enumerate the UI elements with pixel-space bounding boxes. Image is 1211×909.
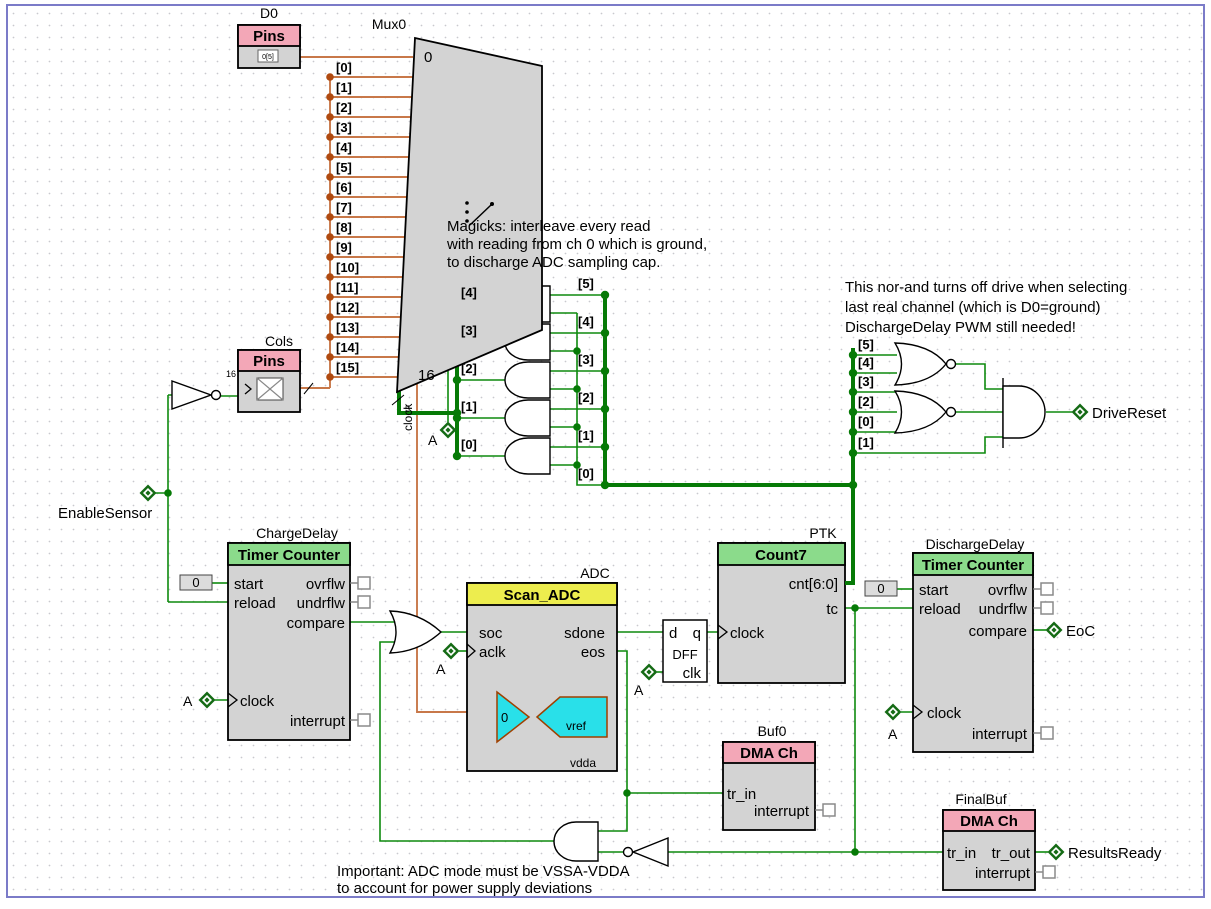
pin-soc: soc xyxy=(479,625,503,642)
junction xyxy=(326,73,334,81)
ovrflw-terminal[interactable] xyxy=(1041,583,1053,595)
finalbuf-type: DMA Ch xyxy=(960,813,1018,830)
chargedelay-body[interactable] xyxy=(228,543,350,740)
count7-name: PTK xyxy=(809,525,837,541)
buf0-type: DMA Ch xyxy=(740,745,798,762)
pin-start: start xyxy=(234,576,264,593)
and-gate-interleave-2[interactable] xyxy=(505,362,550,398)
clock-a-label: A xyxy=(428,432,438,448)
junction xyxy=(326,213,334,221)
pin-clock: clock xyxy=(240,693,275,710)
schematic-canvas[interactable]: Mux0 0 16 5 clock [0][1] [2][3] [4][5] [… xyxy=(0,0,1211,909)
d0-name: D0 xyxy=(260,5,278,21)
svg-text:[0]: [0] xyxy=(858,414,874,429)
mux-body[interactable] xyxy=(397,38,542,392)
pin-undrflw: undrflw xyxy=(979,601,1028,618)
dischargedelay-type: Timer Counter xyxy=(922,557,1024,574)
pin-clock: clock xyxy=(730,625,765,642)
cols-width-left: 16 xyxy=(226,369,236,379)
note-magicks[interactable]: to discharge ADC sampling cap. xyxy=(447,254,660,271)
svg-text:[9]: [9] xyxy=(336,240,352,255)
inverter-enable-bubble xyxy=(212,391,221,400)
interrupt-terminal[interactable] xyxy=(1043,866,1055,878)
buf0-name: Buf0 xyxy=(758,723,787,739)
pin-reload: reload xyxy=(234,595,276,612)
junction xyxy=(326,113,334,121)
count7-type: Count7 xyxy=(755,547,807,564)
pin-reload: reload xyxy=(919,601,961,618)
and-gate-interleave-0[interactable] xyxy=(505,438,550,474)
pin-start: start xyxy=(919,582,949,599)
enablesensor-label: EnableSensor xyxy=(58,505,152,522)
resultsready-label: ResultsReady xyxy=(1068,845,1162,862)
finalbuf-name: FinalBuf xyxy=(955,791,1006,807)
svg-text:[11]: [11] xyxy=(336,280,358,295)
interrupt-terminal[interactable] xyxy=(358,714,370,726)
drivereset-label: DriveReset xyxy=(1092,405,1167,422)
mux-clock-label: clock xyxy=(401,403,415,431)
dff-name: DFF xyxy=(672,647,697,662)
pin-q: q xyxy=(693,625,701,642)
undrflw-terminal[interactable] xyxy=(358,596,370,608)
svg-text:[15]: [15] xyxy=(336,360,359,375)
adc-name: ADC xyxy=(580,565,610,581)
clock-a-label: A xyxy=(888,726,898,742)
dischargedelay-name: DischargeDelay xyxy=(926,536,1025,552)
clock-a-label: A xyxy=(634,682,644,698)
component-dff[interactable]: d q DFF clk xyxy=(663,620,707,682)
ovrflw-terminal[interactable] xyxy=(358,577,370,589)
mux-in16-label: 16 xyxy=(418,367,435,384)
svg-text:[2]: [2] xyxy=(336,100,352,115)
note-norand[interactable]: DischargeDelay PWM still needed! xyxy=(845,319,1076,336)
component-adc[interactable]: ADC Scan_ADC soc aclk sdone eos 0 vref v… xyxy=(467,565,617,771)
and-gate-interleave-1[interactable] xyxy=(505,400,550,436)
junction xyxy=(326,133,334,141)
svg-text:[4]: [4] xyxy=(336,140,352,155)
junction xyxy=(326,373,334,381)
svg-text:[4]: [4] xyxy=(578,314,594,329)
pin-tr-out: tr_out xyxy=(992,845,1031,862)
pin-compare: compare xyxy=(287,615,345,632)
pin-interrupt: interrupt xyxy=(972,726,1028,743)
adc-zero-label: 0 xyxy=(501,710,508,725)
svg-text:[2]: [2] xyxy=(461,361,477,376)
svg-text:[5]: [5] xyxy=(578,276,594,291)
pin-interrupt: interrupt xyxy=(290,713,346,730)
d0-pin-glyph-label: 0[5] xyxy=(262,54,274,61)
vref-label: vref xyxy=(566,719,587,733)
note-important[interactable]: to account for power supply deviations xyxy=(337,880,592,897)
note-magicks[interactable]: with reading from ch 0 which is ground, xyxy=(446,236,707,253)
junction xyxy=(326,93,334,101)
pin-compare: compare xyxy=(969,623,1027,640)
vdda-label: vdda xyxy=(570,756,596,770)
nor-lower-bubble xyxy=(947,408,956,417)
svg-text:[10]: [10] xyxy=(336,260,359,275)
const-zero-label: 0 xyxy=(877,581,884,596)
junction xyxy=(326,253,334,261)
svg-text:[8]: [8] xyxy=(336,220,352,235)
svg-text:[12]: [12] xyxy=(336,300,359,315)
svg-text:[1]: [1] xyxy=(578,428,594,443)
svg-text:[1]: [1] xyxy=(336,80,352,95)
svg-text:[6]: [6] xyxy=(336,180,352,195)
junction xyxy=(326,353,334,361)
mux-in0-label: 0 xyxy=(424,49,432,66)
pin-clock: clock xyxy=(927,705,962,722)
svg-text:[0]: [0] xyxy=(336,60,352,75)
note-norand[interactable]: This nor-and turns off drive when select… xyxy=(845,279,1127,296)
pin-cnt: cnt[6:0] xyxy=(789,576,838,593)
svg-text:[4]: [4] xyxy=(461,285,477,300)
adc-type: Scan_ADC xyxy=(504,587,581,604)
pin-sdone: sdone xyxy=(564,625,605,642)
cols-name: Cols xyxy=(265,333,293,349)
pin-aclk: aclk xyxy=(479,644,506,661)
junction xyxy=(326,313,334,321)
svg-text:[13]: [13] xyxy=(336,320,359,335)
chargedelay-name: ChargeDelay xyxy=(256,525,338,541)
junction xyxy=(326,233,334,241)
eoc-label: EoC xyxy=(1066,623,1095,640)
pin-interrupt: interrupt xyxy=(975,865,1031,882)
svg-text:[14]: [14] xyxy=(336,340,359,355)
pin-eos: eos xyxy=(581,644,605,661)
inverter-bottom-bubble xyxy=(624,848,633,857)
chargedelay-type: Timer Counter xyxy=(238,547,340,564)
svg-text:[1]: [1] xyxy=(858,435,874,450)
svg-text:[3]: [3] xyxy=(578,352,594,367)
d0-type: Pins xyxy=(253,28,285,45)
svg-text:[2]: [2] xyxy=(858,394,874,409)
svg-text:[1]: [1] xyxy=(461,399,477,414)
mux-name: Mux0 xyxy=(372,16,406,32)
interrupt-terminal[interactable] xyxy=(1041,727,1053,739)
junction xyxy=(326,153,334,161)
clock-a-label: A xyxy=(436,661,446,677)
const-zero-label: 0 xyxy=(192,575,199,590)
pin-d: d xyxy=(669,625,677,642)
interrupt-terminal[interactable] xyxy=(823,804,835,816)
pin-tr-in: tr_in xyxy=(947,845,976,862)
clock-a-label: A xyxy=(183,693,193,709)
svg-text:[5]: [5] xyxy=(336,160,352,175)
pin-tc: tc xyxy=(826,601,838,618)
pin-interrupt: interrupt xyxy=(754,803,810,820)
pin-undrflw: undrflw xyxy=(297,595,346,612)
svg-text:[4]: [4] xyxy=(858,355,874,370)
cols-type: Pins xyxy=(253,353,285,370)
junction xyxy=(326,333,334,341)
svg-text:[0]: [0] xyxy=(578,466,594,481)
junction xyxy=(326,273,334,281)
svg-text:[0]: [0] xyxy=(461,437,477,452)
and-gate-bottom[interactable] xyxy=(554,822,598,861)
adc-body[interactable] xyxy=(467,583,617,771)
undrflw-terminal[interactable] xyxy=(1041,602,1053,614)
pin-ovrflw: ovrflw xyxy=(306,576,345,593)
svg-text:[3]: [3] xyxy=(858,374,874,389)
svg-text:[3]: [3] xyxy=(461,323,477,338)
junction xyxy=(326,193,334,201)
note-magicks[interactable]: Magicks: interleave every read xyxy=(447,218,650,235)
pin-ovrflw: ovrflw xyxy=(988,582,1027,599)
svg-text:[2]: [2] xyxy=(578,390,594,405)
pin-clk: clk xyxy=(683,665,702,682)
pin-tr-in: tr_in xyxy=(727,786,756,803)
svg-text:[7]: [7] xyxy=(336,200,352,215)
svg-text:[3]: [3] xyxy=(336,120,352,135)
junction xyxy=(326,293,334,301)
nor-upper-bubble xyxy=(947,360,956,369)
junction xyxy=(326,173,334,181)
svg-text:[5]: [5] xyxy=(858,337,874,352)
note-important[interactable]: Important: ADC mode must be VSSA-VDDA xyxy=(337,863,630,880)
component-count7[interactable]: PTK Count7 cnt[6:0] tc clock xyxy=(718,525,853,683)
note-norand[interactable]: last real channel (which is D0=ground) xyxy=(845,299,1101,316)
